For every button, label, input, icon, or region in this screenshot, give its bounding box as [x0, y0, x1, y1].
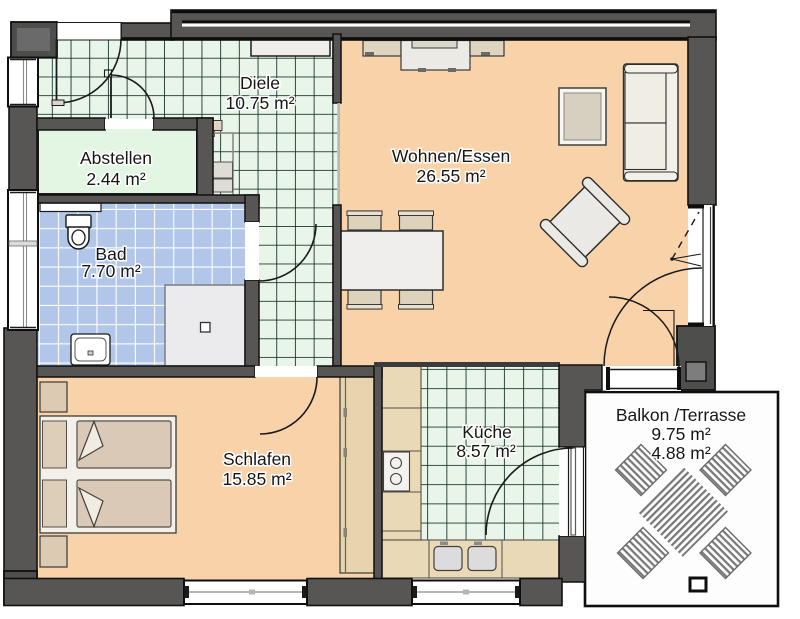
- svg-text:Küche: Küche: [462, 422, 512, 442]
- svg-text:8.57 m²: 8.57 m²: [456, 441, 515, 461]
- svg-text:Schlafen: Schlafen: [223, 449, 291, 469]
- svg-text:10.75 m²: 10.75 m²: [225, 93, 294, 113]
- svg-text:Wohnen/Essen: Wohnen/Essen: [392, 146, 510, 166]
- svg-text:Diele: Diele: [240, 73, 280, 93]
- svg-text:7.70 m²: 7.70 m²: [81, 261, 140, 281]
- svg-text:15.85 m²: 15.85 m²: [222, 469, 291, 489]
- svg-text:4.88 m²: 4.88 m²: [651, 443, 710, 463]
- svg-text:26.55 m²: 26.55 m²: [416, 166, 485, 186]
- svg-text:2.44 m²: 2.44 m²: [86, 169, 145, 189]
- svg-text:9.75 m²: 9.75 m²: [651, 424, 710, 444]
- svg-text:Balkon /Terrasse: Balkon /Terrasse: [616, 405, 746, 425]
- svg-text:Abstellen: Abstellen: [80, 148, 152, 168]
